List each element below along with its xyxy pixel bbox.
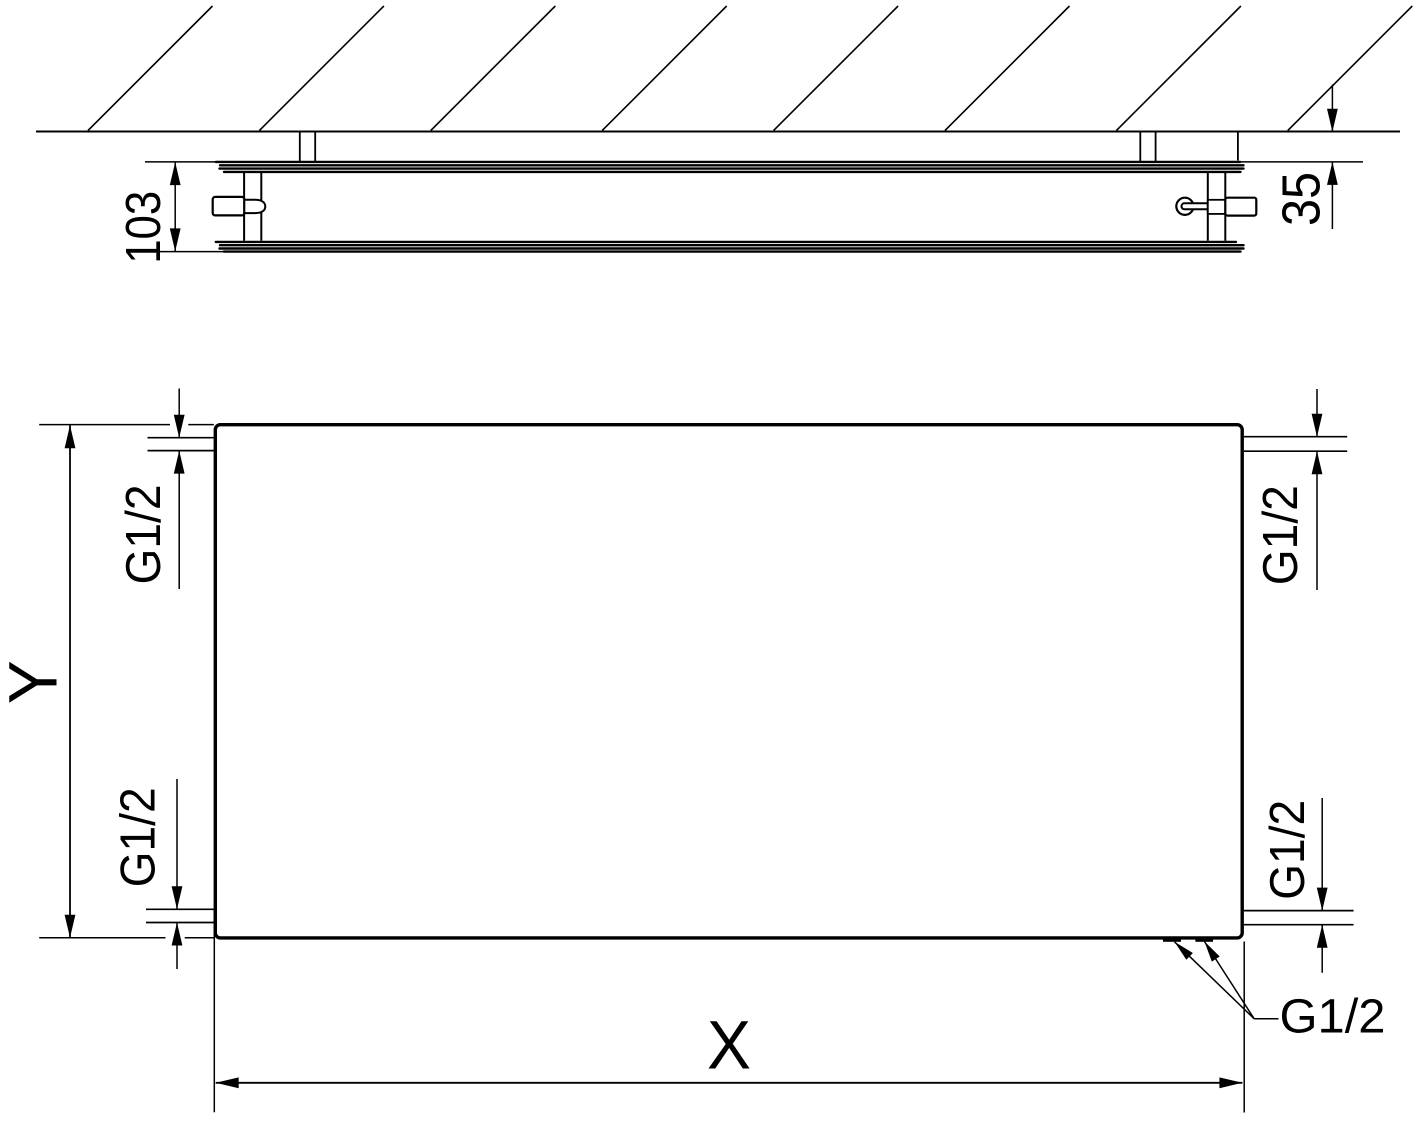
svg-text:G1/2: G1/2: [1254, 485, 1308, 585]
svg-text:G1/2: G1/2: [1261, 800, 1315, 900]
svg-text:G1/2: G1/2: [1280, 991, 1386, 1044]
svg-text:G1/2: G1/2: [117, 485, 171, 585]
svg-text:Y: Y: [0, 660, 72, 704]
svg-text:X: X: [707, 1006, 751, 1083]
svg-text:35: 35: [1272, 172, 1332, 226]
svg-text:103: 103: [117, 191, 171, 264]
svg-text:G1/2: G1/2: [112, 787, 166, 887]
